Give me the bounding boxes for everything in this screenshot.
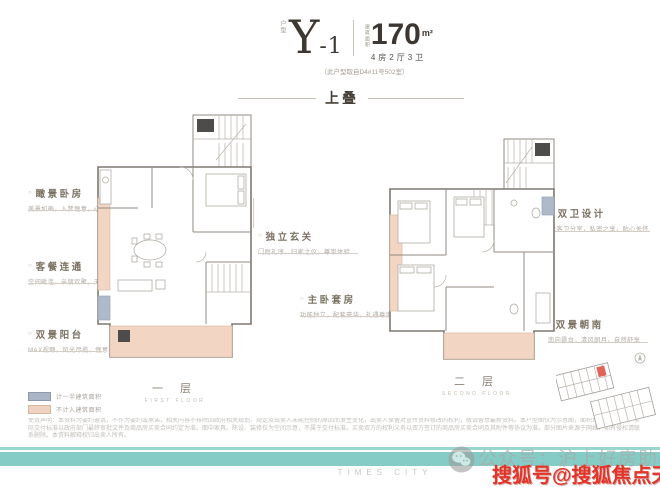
callout-line bbox=[258, 253, 358, 254]
second-floor-plan bbox=[386, 137, 558, 369]
half-area-platform bbox=[98, 296, 110, 320]
annotation-south-facing: ○双景朝南 南向露台，清风朗月，自然舒享 bbox=[548, 317, 656, 344]
sohu-watermark: 搜狐号@搜狐焦点天门站 bbox=[492, 459, 660, 487]
floor-name: 一 层 bbox=[120, 380, 230, 396]
site-location-inset-map bbox=[556, 350, 658, 440]
floor-name: 二 层 bbox=[422, 373, 532, 389]
annotation-double-bath: ○双卫设计 主客卫分室，私密之享，贴心关怀 bbox=[550, 206, 658, 233]
floor-name-en: SECOND FLOOR bbox=[422, 391, 532, 397]
bullet-circle-icon: ○ bbox=[28, 263, 32, 269]
half-area-platform bbox=[542, 197, 554, 215]
annotation-title: 双卫设计 bbox=[558, 206, 606, 220]
side-balcony bbox=[98, 198, 110, 290]
unit-type-label: 户型 bbox=[278, 20, 287, 36]
bullet-circle-icon: ○ bbox=[300, 296, 304, 302]
annotation-title: 客餐连通 bbox=[36, 259, 84, 273]
area-label: 建筑面积 bbox=[364, 24, 371, 48]
legend-swatch-pink bbox=[28, 405, 51, 414]
area-value: 170m² bbox=[371, 20, 433, 50]
callout-line bbox=[548, 342, 648, 343]
rooms-spec: 4房2厅3卫 bbox=[371, 52, 433, 63]
legend-item-excluded-area: 不计入建筑面积 bbox=[28, 405, 102, 414]
section-line-right bbox=[368, 98, 464, 99]
wechat-icon bbox=[448, 446, 475, 473]
legend: 计一半建筑面积 不计入建筑面积 bbox=[28, 392, 102, 418]
bottom-terrace bbox=[444, 333, 534, 359]
section-title-text: 上叠 bbox=[325, 88, 359, 108]
header: 户型 Y-1 建筑面积 170m² 4房2厅3卫 bbox=[278, 14, 433, 63]
bullet-circle-icon: ○ bbox=[28, 331, 32, 337]
floorplan-poster: 户型 Y-1 建筑面积 170m² 4房2厅3卫 （此户型取自D4#11号502… bbox=[0, 0, 660, 487]
callout-line bbox=[28, 210, 102, 211]
disclaimer-text: 免责声明：本资料为要约邀请，不作为要约或承诺，相关内容不排除因政府相关规划、规定… bbox=[28, 418, 640, 442]
annotation-title: 独立玄关 bbox=[266, 229, 314, 243]
legend-item-half-area: 计一半建筑面积 bbox=[28, 392, 102, 401]
legend-swatch-blue bbox=[28, 392, 51, 401]
header-divider bbox=[353, 20, 354, 56]
section-line-left bbox=[238, 98, 316, 99]
annotation-title: 主卧套房 bbox=[308, 292, 356, 306]
legend-label: 计一半建筑面积 bbox=[56, 392, 102, 401]
second-floor-label: 二 层 SECOND FLOOR bbox=[422, 373, 532, 397]
unit-name: Y-1 bbox=[289, 14, 343, 60]
section-title: 上叠 bbox=[238, 88, 464, 108]
bullet-circle-icon: ○ bbox=[28, 190, 32, 196]
first-floor-label: 一 层 FIRST FLOOR bbox=[120, 380, 230, 404]
legend-label: 不计入建筑面积 bbox=[56, 405, 102, 414]
callout-line bbox=[28, 283, 102, 284]
floor-name-en: FIRST FLOOR bbox=[120, 398, 230, 404]
area-unit: m² bbox=[422, 28, 433, 38]
callout-line bbox=[28, 351, 102, 352]
area-block: 170m² 4房2厅3卫 bbox=[371, 14, 433, 63]
callout-line bbox=[550, 231, 650, 232]
annotation-title: 双景朝南 bbox=[556, 317, 604, 331]
annotation-title: 双景阳台 bbox=[36, 327, 84, 341]
annotation-title: 瞰景卧房 bbox=[36, 186, 84, 200]
first-floor-plan bbox=[94, 112, 259, 374]
source-note: （此户型取自D4#11号502室） bbox=[272, 66, 457, 76]
